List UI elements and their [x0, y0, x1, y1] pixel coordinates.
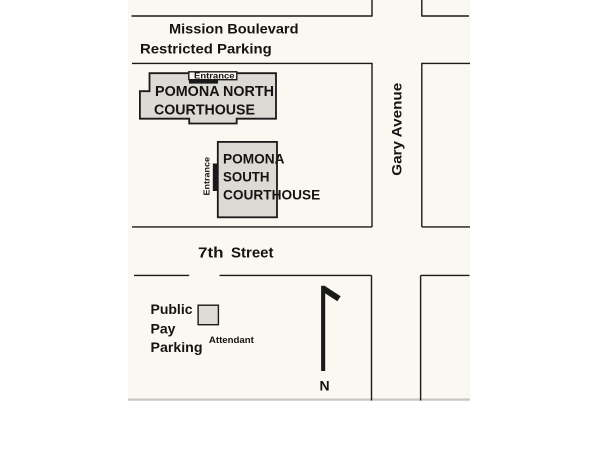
svg-text:POMONA NORTH: POMONA NORTH: [155, 84, 274, 100]
svg-text:Public: Public: [151, 301, 193, 317]
svg-text:Pay: Pay: [151, 320, 176, 336]
svg-text:COURTHOUSE: COURTHOUSE: [154, 103, 255, 119]
svg-text:POMONA: POMONA: [223, 151, 285, 167]
svg-text:Street: Street: [231, 245, 274, 262]
svg-text:Entrance: Entrance: [194, 71, 235, 80]
svg-text:Mission Boulevard: Mission Boulevard: [169, 21, 299, 37]
svg-text:Attendant: Attendant: [209, 335, 254, 345]
svg-text:Entrance: Entrance: [203, 156, 212, 195]
svg-text:7th: 7th: [198, 245, 224, 262]
svg-text:Parking: Parking: [151, 339, 203, 355]
svg-text:N: N: [320, 377, 330, 393]
svg-text:Gary Avenue: Gary Avenue: [390, 82, 405, 176]
svg-text:COURTHOUSE: COURTHOUSE: [223, 187, 320, 203]
svg-text:Restricted Parking: Restricted Parking: [140, 40, 272, 56]
svg-text:SOUTH: SOUTH: [223, 169, 270, 185]
